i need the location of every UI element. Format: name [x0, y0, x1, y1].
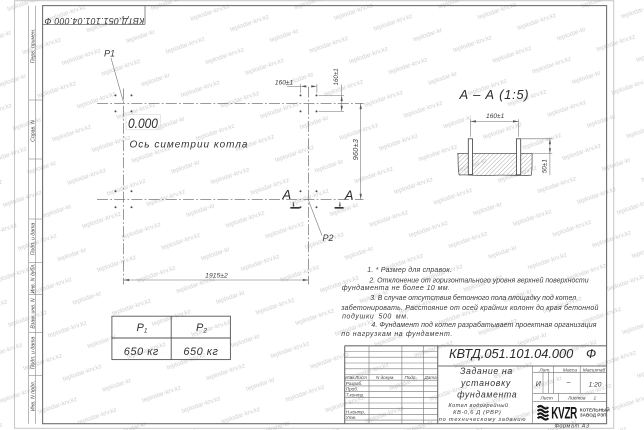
svg-text:A: A — [344, 188, 354, 203]
svg-text:Котел водогрейный: Котел водогрейный — [448, 402, 508, 409]
svg-text:2. Отклонение от горизонтально: 2. Отклонение от горизонтального уровня … — [368, 276, 588, 284]
svg-text:KVZR: KVZR — [551, 404, 577, 422]
svg-text:960±3: 960±3 — [351, 139, 360, 160]
svg-text:160±1: 160±1 — [275, 79, 294, 86]
svg-text:4. Фундамент под котел разраба: 4. Фундамент под котел разрабатывает про… — [371, 321, 596, 329]
svg-text:Проб.: Проб. — [346, 387, 358, 392]
svg-text:по техническому заданию: по техническому заданию — [439, 417, 527, 423]
svg-text:P2: P2 — [323, 233, 334, 243]
svg-text:Взам. инв. N: Взам. инв. N — [30, 298, 36, 328]
svg-text:–: – — [566, 379, 571, 386]
svg-text:Ось симетрии котла: Ось симетрии котла — [130, 139, 249, 150]
svg-text:Перв. примен.: Перв. примен. — [30, 29, 36, 63]
svg-text:Справ. N: Справ. N — [30, 120, 36, 142]
svg-text:КВТД.051.101.04.000: КВТД.051.101.04.000 — [449, 346, 574, 361]
svg-text:забетонировать. Расстояние от: забетонировать. Расстояние от осей крайн… — [340, 304, 598, 312]
svg-text:Утв.: Утв. — [346, 415, 356, 420]
svg-text:160±1: 160±1 — [333, 68, 340, 85]
svg-text:N докум.: N докум. — [376, 375, 395, 380]
svg-text:650 кг: 650 кг — [124, 346, 159, 358]
svg-text:650 кг: 650 кг — [183, 346, 218, 358]
svg-text:1: 1 — [594, 396, 597, 402]
svg-text:1915±2: 1915±2 — [205, 273, 228, 280]
svg-text:Лист: Лист — [540, 396, 553, 402]
svg-text:КВТД.051.101.04.000 Ф: КВТД.051.101.04.000 Ф — [44, 16, 144, 26]
svg-text:Подп.: Подп. — [405, 375, 417, 380]
svg-text:0.000: 0.000 — [128, 115, 158, 131]
svg-text:КОТЕЛЬНЫЙ: КОТЕЛЬНЫЙ — [580, 405, 610, 412]
svg-text:Разраб.: Разраб. — [346, 381, 363, 386]
svg-text:160±1: 160±1 — [486, 113, 505, 120]
svg-text:Масса: Масса — [563, 367, 578, 373]
svg-text:фундамента не более 10 мм.: фундамента не более 10 мм. — [342, 284, 451, 292]
svg-text:A: A — [282, 187, 292, 202]
svg-text:установку: установку — [460, 378, 511, 388]
svg-text:Ф: Ф — [586, 346, 596, 361]
svg-text:Н.контр.: Н.контр. — [346, 410, 365, 415]
svg-text:А – А (1:5): А – А (1:5) — [459, 87, 530, 102]
svg-text:3. В случае отсутствия бетонно: 3. В случае отсутствия бетонного пола пл… — [370, 294, 576, 302]
svg-text:Инв. N дубл.: Инв. N дубл. — [30, 263, 36, 293]
svg-text:Листов: Листов — [567, 396, 586, 402]
svg-text:1:20: 1:20 — [589, 381, 602, 388]
svg-text:50±1: 50±1 — [541, 159, 548, 174]
svg-text:фундамента: фундамента — [457, 389, 517, 399]
svg-text:Формат А3: Формат А3 — [554, 423, 589, 429]
svg-text:Т.контр.: Т.контр. — [346, 392, 365, 397]
svg-text:по нагрузкам на фундамент.: по нагрузкам на фундамент. — [341, 330, 453, 338]
svg-text:1. * Размер для справок.: 1. * Размер для справок. — [367, 266, 452, 274]
svg-text:Подп. и дата: Подп. и дата — [30, 223, 36, 256]
svg-text:P1: P1 — [104, 49, 115, 59]
svg-text:Лит.: Лит. — [538, 367, 550, 373]
svg-text:Масштаб: Масштаб — [583, 367, 606, 373]
svg-text:ЗАВОД РЗП: ЗАВОД РЗП — [580, 413, 607, 418]
svg-text:Инв. N подл.: Инв. N подл. — [30, 381, 36, 411]
svg-text:КВ-0,6 Д (РВР): КВ-0,6 Д (РВР) — [453, 410, 501, 416]
svg-text:подушки 500 мм.: подушки 500 мм. — [342, 313, 409, 321]
svg-text:Дата: Дата — [424, 375, 438, 380]
svg-text:Подп. и дата: Подп. и дата — [30, 337, 36, 370]
svg-text:Изм.Лист: Изм.Лист — [345, 375, 367, 380]
svg-text:Задание на: Задание на — [460, 366, 513, 376]
